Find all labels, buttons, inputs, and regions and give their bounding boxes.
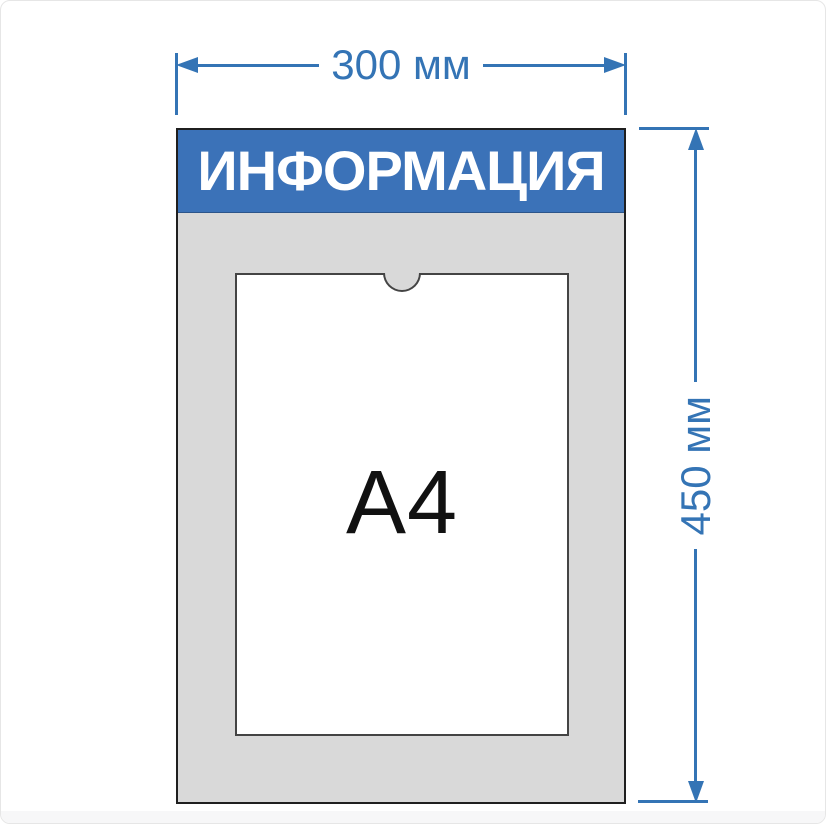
arrow-up-icon	[688, 128, 704, 150]
footer-strip	[1, 811, 825, 823]
board-header: ИНФОРМАЦИЯ	[178, 130, 624, 213]
dimension-line-segment	[483, 64, 604, 67]
height-dimension-label: 450 мм	[675, 396, 717, 536]
dimension-line-segment	[694, 150, 697, 382]
width-dimension-label: 300 мм	[331, 44, 471, 86]
arrow-right-icon	[604, 57, 626, 73]
arrow-down-icon	[688, 781, 704, 803]
width-dimension: 300 мм	[176, 43, 626, 87]
product-diagram: 300 мм 450 мм ИНФОРМАЦИЯ A4	[0, 0, 826, 824]
pocket-thumb-notch	[383, 273, 421, 292]
arrow-left-icon	[176, 57, 198, 73]
dimension-line-segment	[198, 64, 319, 67]
board-header-title: ИНФОРМАЦИЯ	[197, 143, 604, 199]
height-dimension: 450 мм	[673, 128, 718, 803]
a4-format-label: A4	[346, 458, 458, 548]
dimension-line-segment	[694, 549, 697, 781]
a4-pocket: A4	[235, 273, 569, 736]
info-board: ИНФОРМАЦИЯ A4	[176, 128, 626, 804]
